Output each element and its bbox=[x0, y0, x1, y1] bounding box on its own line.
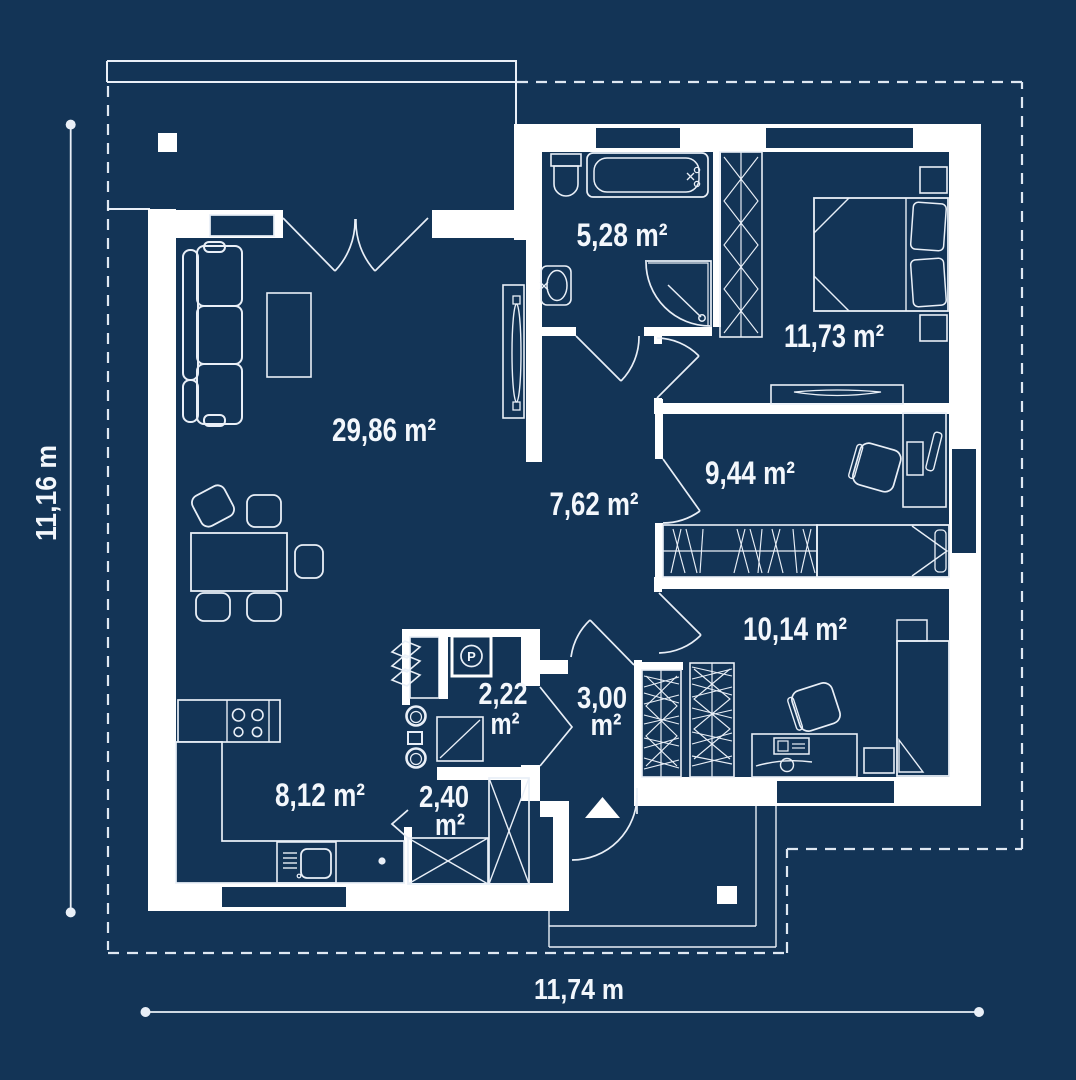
svg-text:11,74 m: 11,74 m bbox=[534, 974, 624, 1006]
svg-text:P: P bbox=[467, 649, 476, 664]
svg-text:11,16 m: 11,16 m bbox=[31, 445, 63, 541]
svg-text:7,62 m²: 7,62 m² bbox=[550, 486, 639, 522]
svg-text:29,86 m²: 29,86 m² bbox=[332, 412, 436, 448]
svg-text:11,73 m²: 11,73 m² bbox=[784, 318, 884, 354]
svg-text:9,44 m²: 9,44 m² bbox=[705, 455, 795, 491]
svg-text:m²: m² bbox=[491, 706, 520, 741]
svg-text:8,12 m²: 8,12 m² bbox=[275, 777, 365, 813]
svg-text:m²: m² bbox=[435, 807, 465, 842]
svg-text:m²: m² bbox=[591, 707, 622, 742]
svg-text:5,28 m²: 5,28 m² bbox=[577, 217, 668, 253]
svg-text:10,14 m²: 10,14 m² bbox=[743, 611, 847, 647]
